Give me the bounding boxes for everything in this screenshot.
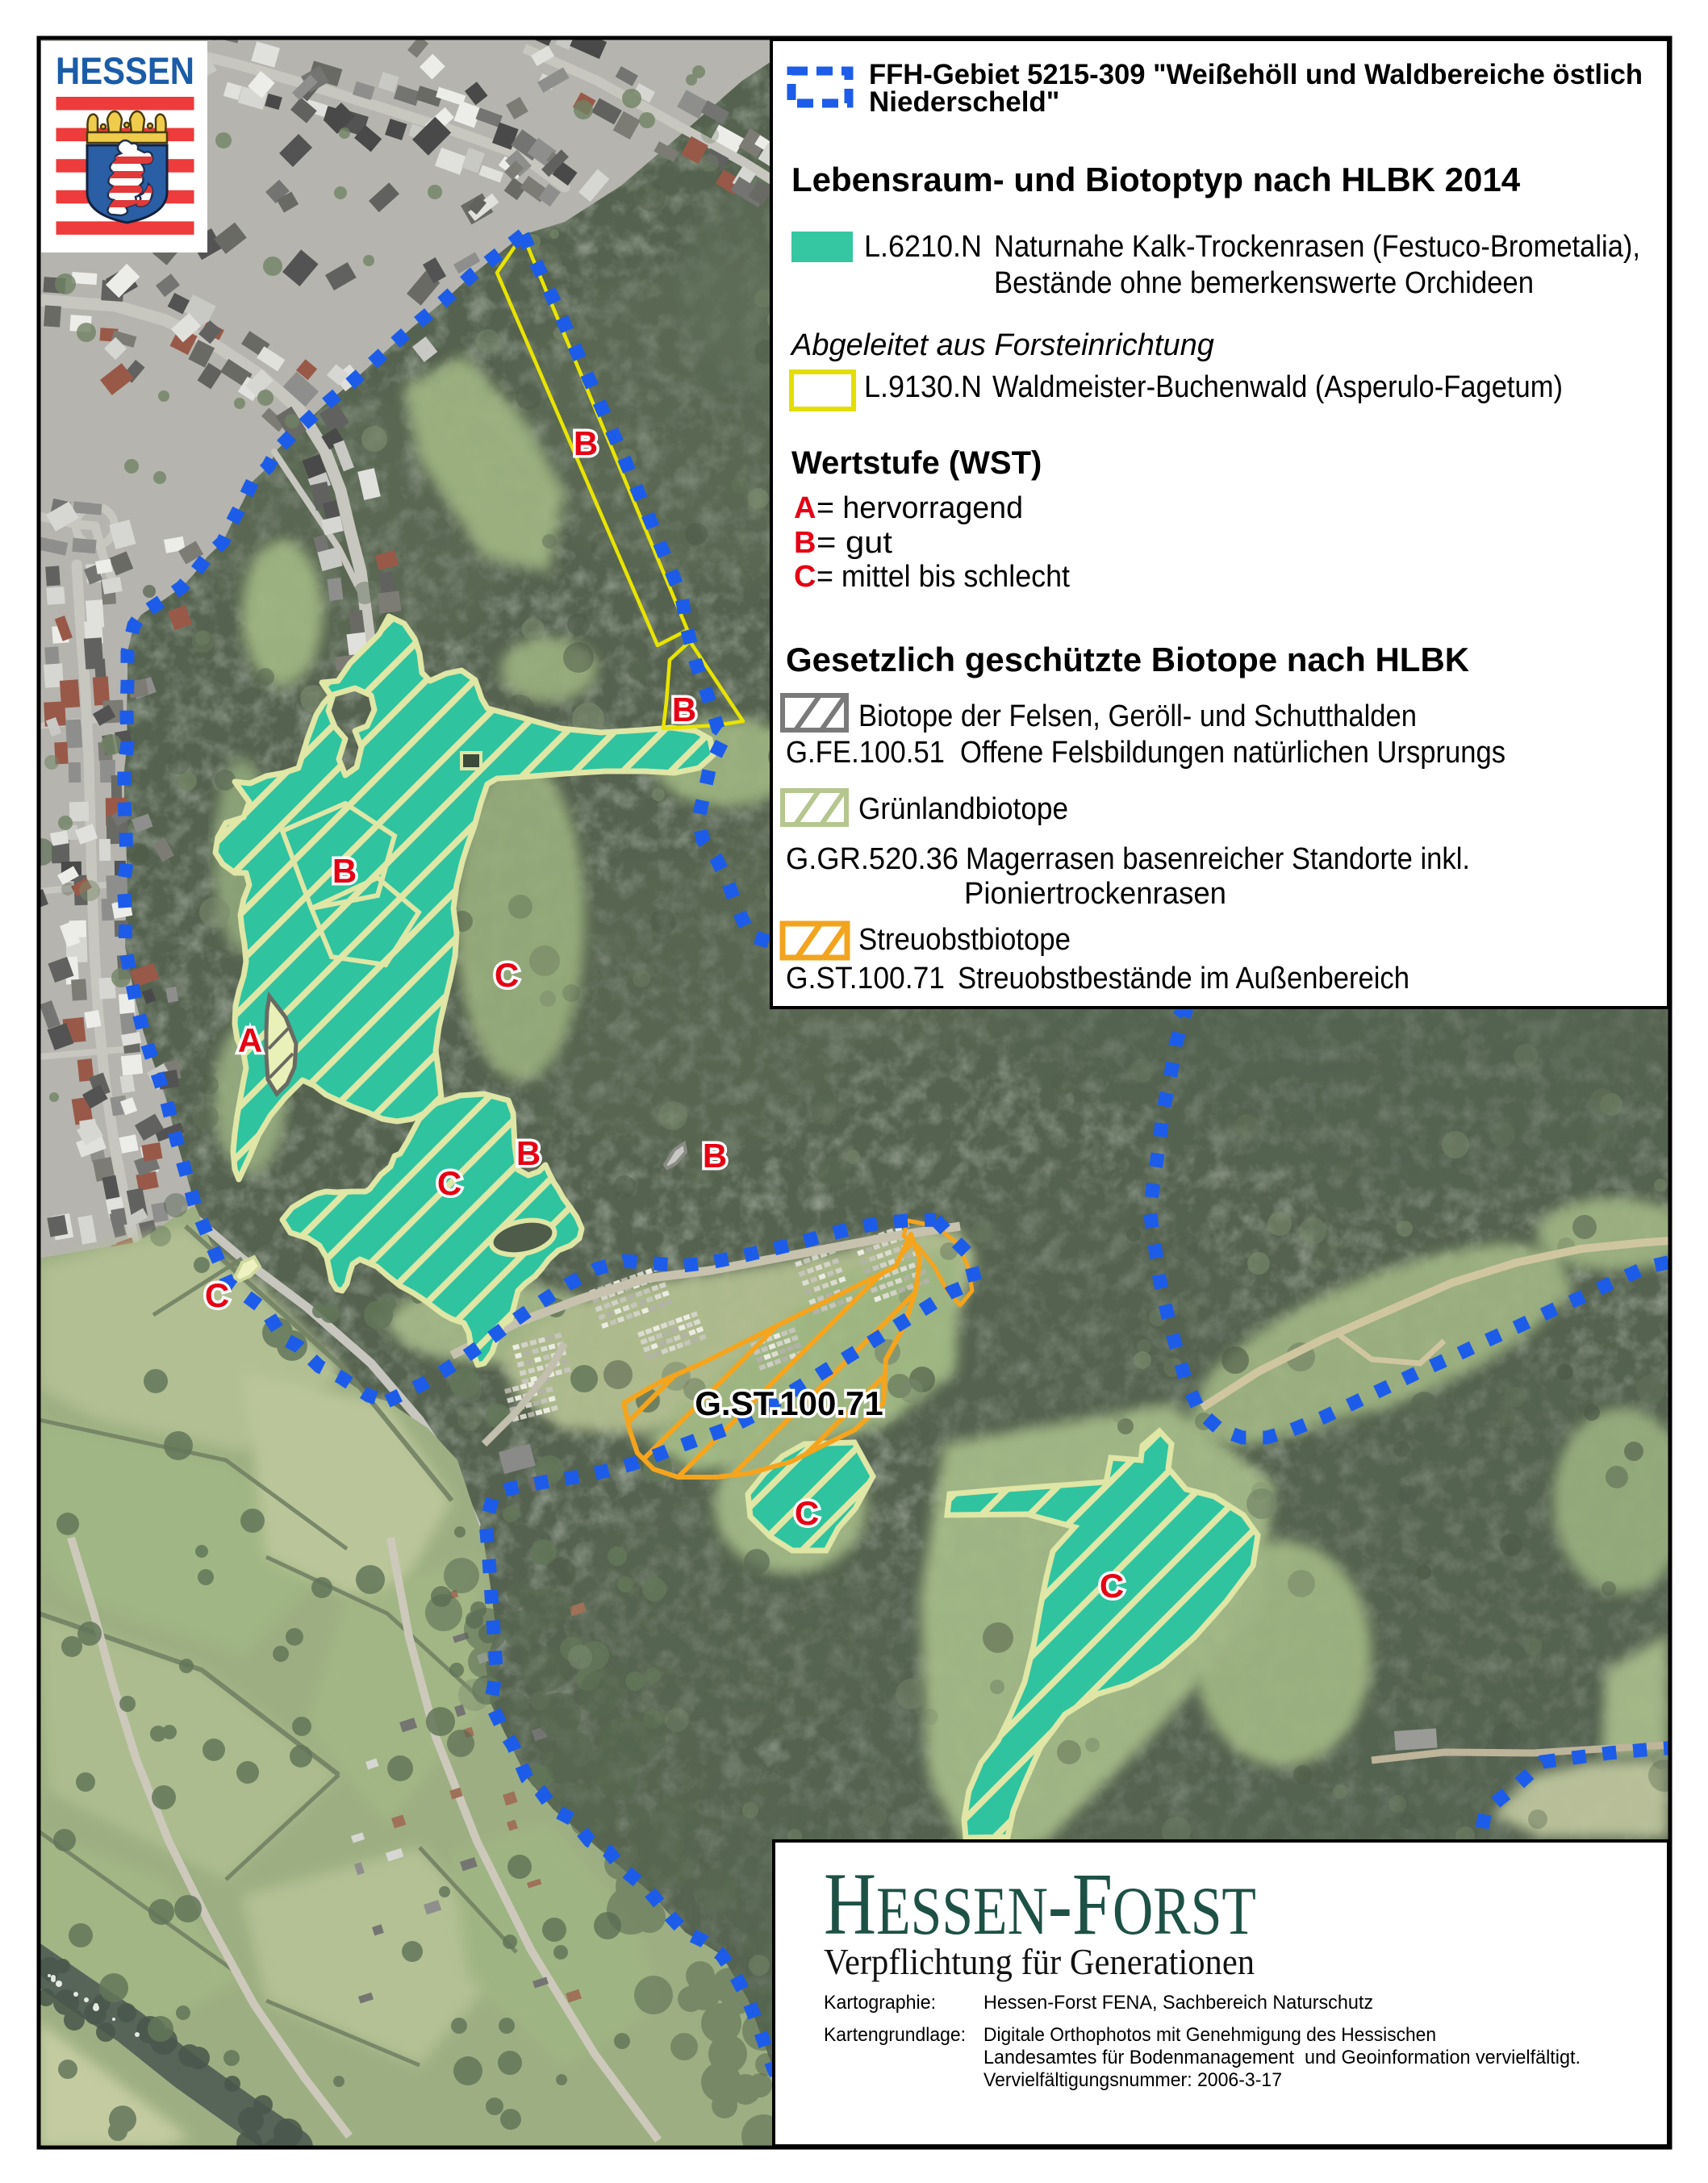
svg-text:G.ST.100.71: G.ST.100.71 xyxy=(786,962,945,995)
svg-text:B: B xyxy=(672,691,696,728)
svg-text:Pioniertrockenrasen: Pioniertrockenrasen xyxy=(964,877,1226,911)
svg-text:= mittel bis schlecht: = mittel bis schlecht xyxy=(816,560,1070,594)
svg-text:C: C xyxy=(495,956,519,994)
svg-text:Vervielfältigungsnummer: 2006-: Vervielfältigungsnummer: 2006-3-17 xyxy=(983,2069,1282,2091)
svg-text:HESSEN: HESSEN xyxy=(56,49,194,92)
svg-text:Hessen-Forst FENA, Sachbereich: Hessen-Forst FENA, Sachbereich Naturschu… xyxy=(983,1992,1373,2014)
svg-text:C: C xyxy=(437,1164,461,1202)
svg-text:Waldmeister-Buchenwald (Asperu: Waldmeister-Buchenwald (Asperulo-Fagetum… xyxy=(992,370,1563,404)
svg-text:Gesetzlich geschützte Biotope: Gesetzlich geschützte Biotope nach HLBK xyxy=(786,641,1469,678)
svg-text:Niederscheld": Niederscheld" xyxy=(869,86,1059,118)
svg-text:Streuobstbestände im Außenbere: Streuobstbestände im Außenbereich xyxy=(958,962,1409,995)
svg-text:B: B xyxy=(794,526,816,560)
svg-text:Grünlandbiotope: Grünlandbiotope xyxy=(858,792,1068,826)
svg-text:C: C xyxy=(794,560,816,594)
svg-text:Naturnahe Kalk-Trockenrasen (F: Naturnahe Kalk-Trockenrasen (Festuco-Bro… xyxy=(994,230,1640,264)
svg-text:L.6210.N: L.6210.N xyxy=(864,230,982,264)
svg-text:A: A xyxy=(238,1021,262,1059)
svg-text:C: C xyxy=(795,1494,819,1532)
svg-text:Verpflichtung für Generationen: Verpflichtung für Generationen xyxy=(824,1941,1255,1982)
svg-text:Offene Felsbildungen natürlich: Offene Felsbildungen natürlichen Ursprun… xyxy=(960,736,1505,770)
svg-text:Magerrasen basenreicher Stando: Magerrasen basenreicher Standorte inkl. xyxy=(966,842,1470,876)
svg-text:Abgeleitet aus Forsteinrichtun: Abgeleitet aus Forsteinrichtung xyxy=(790,328,1214,362)
svg-text:= hervorragend: = hervorragend xyxy=(816,491,1023,525)
svg-text:Kartographie:: Kartographie: xyxy=(824,1992,936,2014)
svg-text:Lebensraum- und Biotoptyp nach: Lebensraum- und Biotoptyp nach HLBK 2014 xyxy=(791,161,1521,198)
svg-text:C: C xyxy=(205,1276,229,1314)
svg-text:G.GR.520.36: G.GR.520.36 xyxy=(786,842,958,876)
svg-text:C: C xyxy=(1100,1567,1124,1605)
svg-text:Streuobstbiotope: Streuobstbiotope xyxy=(858,923,1071,957)
svg-text:G.ST.100.71: G.ST.100.71 xyxy=(695,1384,883,1422)
svg-text:Biotope der Felsen, Geröll- un: Biotope der Felsen, Geröll- und Schuttha… xyxy=(858,699,1417,733)
svg-text:= gut: = gut xyxy=(816,526,892,560)
svg-text:L.9130.N: L.9130.N xyxy=(864,370,982,404)
svg-text:A: A xyxy=(794,491,816,525)
svg-text:Wertstufe (WST): Wertstufe (WST) xyxy=(791,445,1042,481)
svg-text:B: B xyxy=(332,852,357,890)
svg-text:Kartengrundlage:: Kartengrundlage: xyxy=(824,2024,966,2046)
svg-text:G.FE.100.51: G.FE.100.51 xyxy=(786,736,945,770)
svg-text:Landesamtes für Bodenmanagemen: Landesamtes für Bodenmanagement und Geoi… xyxy=(983,2047,1581,2068)
svg-text:B: B xyxy=(516,1134,541,1172)
svg-text:B: B xyxy=(574,424,598,462)
svg-text:Bestände ohne bemerkenswerte O: Bestände ohne bemerkenswerte Orchideen xyxy=(994,266,1534,300)
svg-text:B: B xyxy=(703,1137,727,1175)
svg-text:Digitale Orthophotos mit Geneh: Digitale Orthophotos mit Genehmigung des… xyxy=(983,2024,1436,2046)
